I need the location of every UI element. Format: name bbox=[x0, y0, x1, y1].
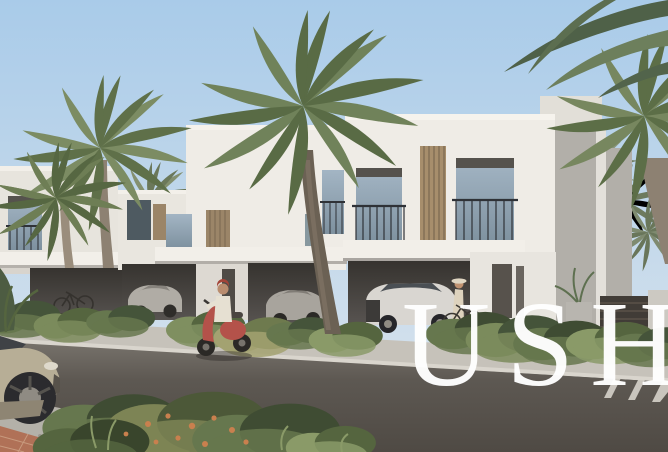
headlight bbox=[44, 362, 58, 370]
window bbox=[166, 214, 192, 248]
annex-louver bbox=[153, 204, 166, 240]
suv-grille bbox=[366, 300, 380, 322]
roller-shade bbox=[456, 158, 514, 168]
rendering-image: USH bbox=[0, 0, 668, 452]
watermark-text: USH bbox=[402, 284, 668, 414]
scooter-rear bbox=[220, 320, 246, 340]
rider-head bbox=[218, 284, 229, 295]
roller-shade bbox=[356, 168, 402, 177]
rider-body bbox=[214, 296, 232, 322]
